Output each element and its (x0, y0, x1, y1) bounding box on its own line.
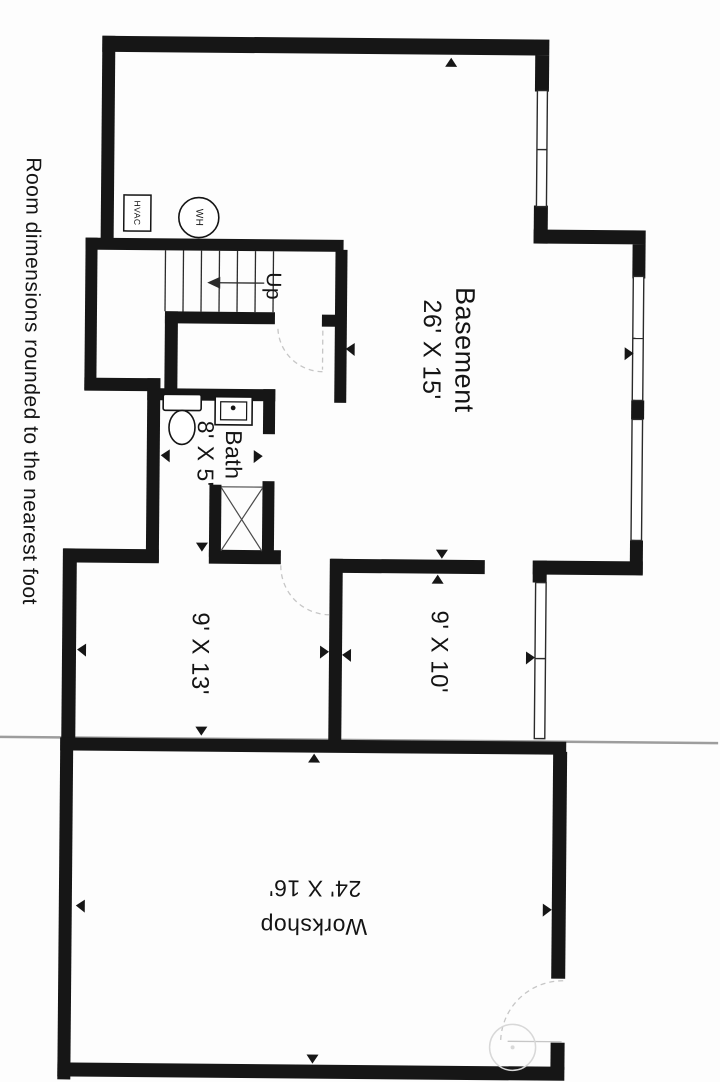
scanned-floorplan-page: HVAC WH Room dimensions rounde (0, 0, 720, 1082)
wall-under-stairs (165, 311, 275, 324)
toilet-tank-icon (163, 394, 201, 410)
wall-stairs-top (86, 238, 344, 252)
basement-floorplan-drawing: HVAC WH Room dimensions rounde (0, 0, 720, 1082)
stairs-arrow-head-icon (207, 277, 220, 289)
marker-triangle-icon (346, 343, 355, 356)
door-arc-hall (277, 326, 322, 371)
basement-room-dims: 26' X 15' (417, 299, 446, 399)
wall-bath-left (146, 378, 161, 562)
sink-basin-icon (221, 402, 247, 420)
wall-basement-bottom-right (533, 561, 643, 576)
crossed-chase-box (221, 487, 263, 551)
wall-hall-east (334, 250, 347, 403)
window-ne-wall (536, 91, 547, 207)
bath-room-dims: 8' X 5' (192, 421, 219, 487)
wall-hall-west (164, 311, 178, 397)
door-arc-9x13 (280, 565, 329, 614)
wall-9x13-left (61, 548, 77, 740)
wall-workshop-right-stub (550, 1043, 564, 1070)
sink-faucet-icon (231, 405, 236, 410)
window-east-lower (631, 419, 643, 540)
marker-triangle-icon (320, 646, 329, 659)
marker-triangle-icon (308, 754, 320, 763)
mechanical-equipment: HVAC WH (124, 195, 219, 238)
stairs-up-label: Up (262, 272, 285, 300)
wall-east-post-upper (632, 244, 645, 278)
marker-triangle-icon (195, 727, 207, 736)
room-9x10-dims: 9' X 10' (425, 610, 453, 693)
workshop-room-dims: 24' X 16' (269, 875, 362, 902)
plan-note: Room dimensions rounded to the nearest f… (18, 157, 45, 605)
wall-9x13-top (64, 548, 159, 563)
marker-triangle-icon (436, 550, 448, 559)
hvac-label: HVAC (132, 201, 142, 226)
watermark-circle (489, 1024, 535, 1070)
marker-triangle-icon (543, 904, 552, 917)
marker-triangle-icon (196, 543, 208, 552)
wall-ne-step (534, 230, 646, 245)
marker-triangle-icon (342, 649, 351, 662)
wall-basement-top (102, 36, 549, 56)
toilet-bowl-icon (169, 410, 195, 444)
room-9x13-dims: 9' X 13' (186, 612, 214, 695)
workshop-room-label: Workshop (260, 913, 367, 940)
door-arc-workshop (501, 980, 564, 1043)
basement-room-label: Basement (449, 287, 480, 413)
wall-bath-right-upper (263, 389, 275, 434)
wall-outer-left-mid (84, 238, 97, 390)
wall-east-mullion (631, 400, 644, 419)
wall-hall-door-stub (322, 315, 336, 327)
wall-basement-bottom-left (331, 559, 485, 574)
wall-9x10-window-post (533, 561, 547, 583)
wall-basement-left-upper (101, 36, 116, 246)
wall-chase-left (209, 485, 222, 557)
wall-workshop-right (551, 752, 567, 979)
marker-triangle-icon (445, 58, 457, 67)
wall-chase-bottom (209, 550, 281, 565)
marker-triangle-icon (254, 450, 263, 463)
wall-workshop-bottom (57, 1062, 564, 1080)
marker-triangle-icon (76, 900, 85, 913)
windows (532, 91, 646, 740)
wall-bath-right-lower (262, 481, 275, 557)
marker-triangle-icon (432, 575, 444, 584)
marker-triangle-icon (161, 449, 170, 462)
marker-triangle-icon (306, 1055, 318, 1064)
bath-room-label: Bath (221, 430, 247, 480)
water-heater-label: WH (193, 209, 204, 227)
wall-ne-post-upper (535, 56, 549, 92)
marker-triangle-icon (77, 644, 86, 657)
marker-triangle-icon (526, 651, 535, 664)
wall-room-divider (328, 559, 343, 742)
window-9x10-east (534, 583, 546, 739)
wall-workshop-left (57, 737, 73, 1079)
